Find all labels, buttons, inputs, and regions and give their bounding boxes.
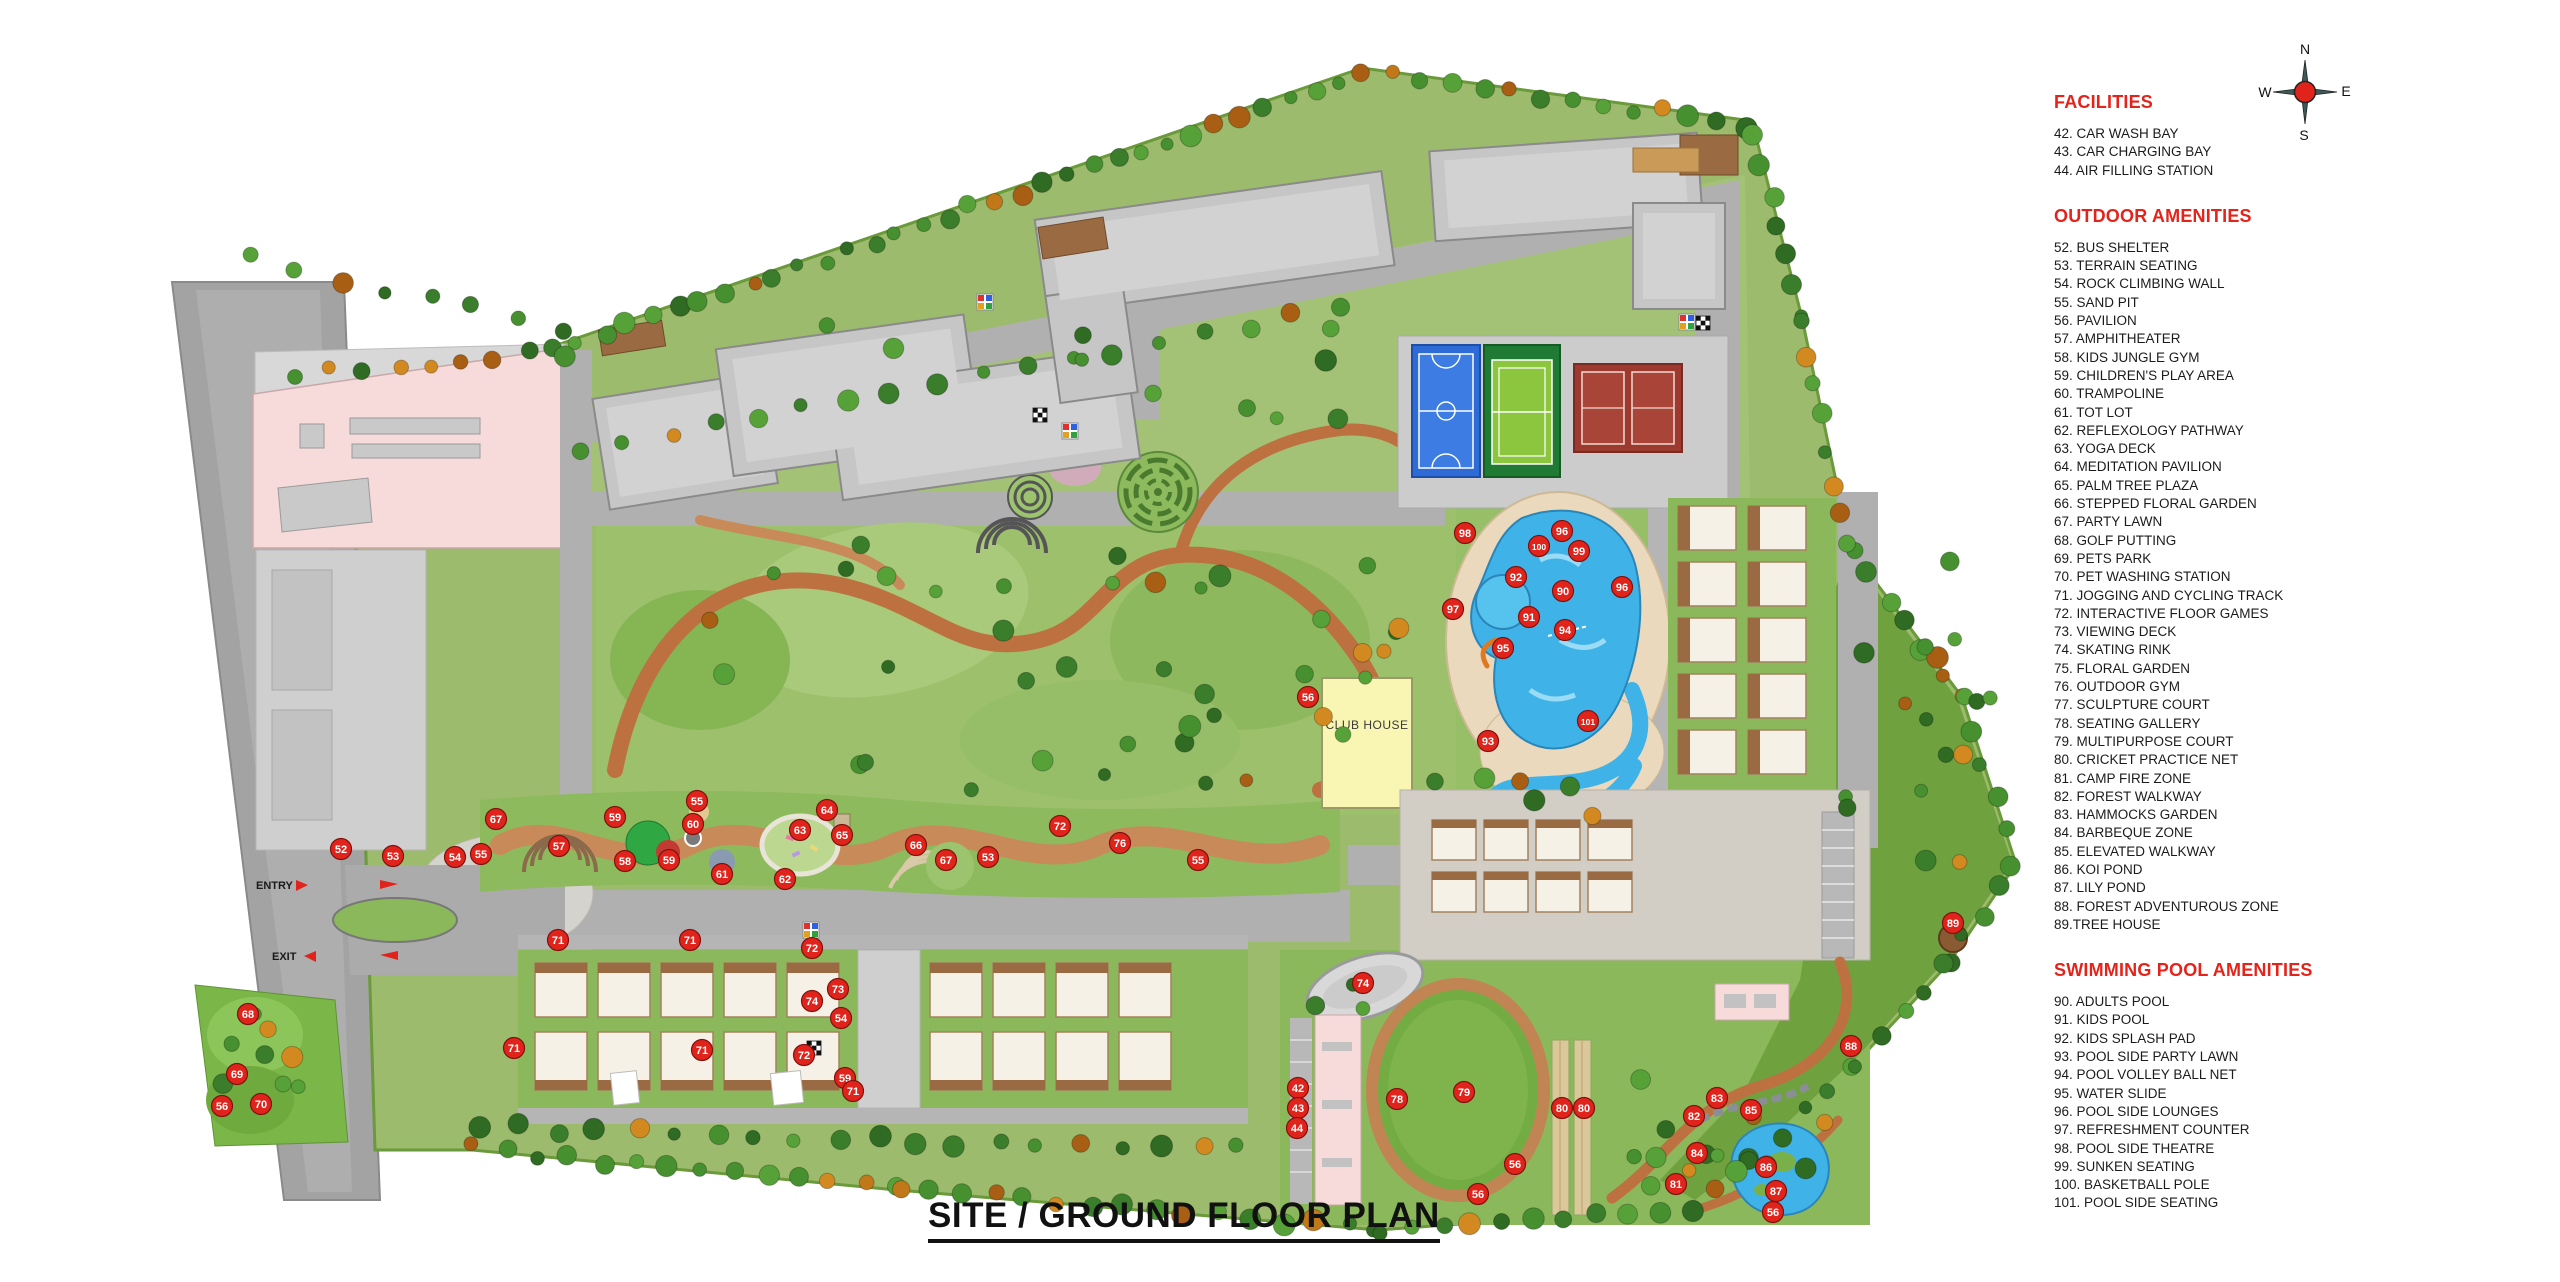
legend-item: 76. OUTDOOR GYM bbox=[2054, 678, 2524, 696]
legend-item: 59. CHILDREN'S PLAY AREA bbox=[2054, 367, 2524, 385]
tree bbox=[333, 273, 354, 294]
tree bbox=[1915, 850, 1936, 871]
svg-text:79: 79 bbox=[1458, 1087, 1470, 1099]
tree bbox=[1195, 582, 1207, 594]
tree bbox=[1306, 996, 1324, 1014]
tree bbox=[1322, 320, 1339, 337]
legend-item: 82. FOREST WALKWAY bbox=[2054, 788, 2524, 806]
tree bbox=[1631, 1070, 1651, 1090]
svg-text:55: 55 bbox=[475, 849, 487, 861]
tree bbox=[224, 1036, 239, 1051]
svg-text:67: 67 bbox=[490, 814, 502, 826]
volleyball-courts bbox=[1574, 364, 1682, 452]
tree bbox=[1285, 91, 1297, 103]
legend-item: 60. TRAMPOLINE bbox=[2054, 385, 2524, 403]
quad-color-marker-icon bbox=[977, 294, 993, 310]
plan-marker: 60 bbox=[683, 814, 704, 835]
svg-text:87: 87 bbox=[1770, 1186, 1782, 1198]
legend-item: 91. KIDS POOL bbox=[2054, 1011, 2524, 1029]
basement-ramp-sign bbox=[610, 1071, 639, 1106]
legend-item: 58. KIDS JUNGLE GYM bbox=[2054, 349, 2524, 367]
tree bbox=[583, 1118, 605, 1140]
legend-item: 74. SKATING RINK bbox=[2054, 641, 2524, 659]
tree bbox=[1427, 773, 1444, 790]
tree bbox=[1940, 552, 1959, 571]
svg-text:98: 98 bbox=[1459, 528, 1471, 540]
tree bbox=[1179, 715, 1201, 737]
tree bbox=[1270, 412, 1283, 425]
quad-color-marker-icon bbox=[1062, 423, 1078, 439]
tennis-court bbox=[1484, 345, 1560, 477]
tree bbox=[1817, 1114, 1833, 1130]
tree bbox=[917, 218, 931, 232]
tree bbox=[1838, 799, 1856, 817]
svg-text:95: 95 bbox=[1497, 643, 1509, 655]
tree bbox=[1075, 327, 1092, 344]
tree bbox=[1386, 65, 1399, 78]
svg-text:55: 55 bbox=[691, 796, 703, 808]
tree bbox=[1059, 167, 1074, 182]
legend-item: 73. VIEWING DECK bbox=[2054, 623, 2524, 641]
tree bbox=[1314, 708, 1332, 726]
shed-window bbox=[1754, 994, 1776, 1008]
svg-text:76: 76 bbox=[1114, 838, 1126, 850]
tree bbox=[1707, 112, 1725, 130]
tree bbox=[550, 1125, 568, 1143]
tree bbox=[1873, 1027, 1892, 1046]
tree bbox=[1352, 64, 1370, 82]
tree bbox=[1377, 644, 1391, 658]
tree bbox=[726, 1162, 743, 1179]
tree bbox=[656, 1155, 677, 1176]
svg-text:71: 71 bbox=[696, 1045, 708, 1057]
tree bbox=[1820, 1084, 1835, 1099]
tree bbox=[883, 338, 904, 359]
svg-text:96: 96 bbox=[1556, 526, 1568, 538]
tree bbox=[1120, 736, 1136, 752]
tree bbox=[714, 664, 735, 685]
plan-marker: 55 bbox=[471, 844, 492, 865]
tree bbox=[1151, 1135, 1173, 1157]
tree bbox=[1238, 400, 1255, 417]
tree bbox=[1356, 1002, 1370, 1016]
tree bbox=[1560, 777, 1579, 796]
svg-text:57: 57 bbox=[553, 841, 565, 853]
tree bbox=[288, 369, 303, 384]
plan-marker: 55 bbox=[687, 791, 708, 812]
legend-section-title: SWIMMING POOL AMENITIES bbox=[2054, 960, 2524, 981]
legend-item: 93. POOL SIDE PARTY LAWN bbox=[2054, 1048, 2524, 1066]
tree bbox=[762, 269, 780, 287]
tree bbox=[1476, 80, 1495, 99]
exit-label: EXIT bbox=[272, 951, 297, 963]
tree bbox=[499, 1140, 517, 1158]
site-plan-page: CLUB HOUSE SPORTS CLUB bbox=[0, 0, 2560, 1282]
svg-text:80: 80 bbox=[1578, 1103, 1590, 1115]
tree bbox=[2000, 856, 2020, 876]
tree bbox=[1359, 671, 1372, 684]
entry-label: ENTRY bbox=[256, 880, 294, 892]
tree bbox=[1618, 1204, 1638, 1224]
tree bbox=[1748, 154, 1769, 175]
svg-text:43: 43 bbox=[1292, 1103, 1304, 1115]
tree bbox=[1086, 156, 1103, 173]
legend-item: 98. POOL SIDE THEATRE bbox=[2054, 1140, 2524, 1158]
tree bbox=[1915, 784, 1928, 797]
svg-text:71: 71 bbox=[684, 935, 696, 947]
tree bbox=[1512, 773, 1529, 790]
tree bbox=[1934, 954, 1953, 973]
tree bbox=[1242, 320, 1260, 338]
tree bbox=[977, 366, 989, 378]
tree bbox=[1180, 125, 1202, 147]
plan-marker: 68 bbox=[238, 1004, 259, 1025]
legend-item: 65. PALM TREE PLAZA bbox=[2054, 477, 2524, 495]
svg-text:60: 60 bbox=[687, 819, 699, 831]
tree bbox=[667, 429, 681, 443]
tree bbox=[322, 361, 335, 374]
parking-row bbox=[272, 570, 332, 690]
tree bbox=[508, 1113, 528, 1133]
tree bbox=[1109, 547, 1126, 564]
legend: FACILITIES42. CAR WASH BAY43. CAR CHARGI… bbox=[2054, 92, 2524, 1213]
plan-marker: 91 bbox=[1519, 607, 1540, 628]
svg-text:72: 72 bbox=[798, 1050, 810, 1062]
legend-item: 100. BASKETBALL POLE bbox=[2054, 1176, 2524, 1194]
plan-marker: 58 bbox=[615, 851, 636, 872]
legend-item: 78. SEATING GALLERY bbox=[2054, 715, 2524, 733]
tree bbox=[1106, 576, 1120, 590]
svg-text:85: 85 bbox=[1745, 1105, 1757, 1117]
quad-color-marker-icon bbox=[1679, 314, 1695, 330]
plan-marker: 71 bbox=[548, 930, 569, 951]
tree bbox=[1895, 610, 1915, 630]
plan-marker: 93 bbox=[1478, 731, 1499, 752]
tree bbox=[1983, 691, 1997, 705]
tree bbox=[1207, 708, 1222, 723]
plan-marker: 67 bbox=[486, 809, 507, 830]
tree bbox=[709, 1125, 729, 1145]
tree bbox=[1682, 1200, 1703, 1221]
tree bbox=[668, 1128, 680, 1140]
legend-item: 90. ADULTS POOL bbox=[2054, 993, 2524, 1011]
tree bbox=[1056, 657, 1077, 678]
villas-bottom-left bbox=[518, 935, 1248, 1124]
plan-marker: 74 bbox=[1353, 973, 1374, 994]
svg-text:71: 71 bbox=[552, 935, 564, 947]
plan-marker: 95 bbox=[1493, 638, 1514, 659]
tree bbox=[1281, 303, 1300, 322]
tree bbox=[708, 414, 724, 430]
legend-item: 75. FLORAL GARDEN bbox=[2054, 660, 2524, 678]
tree bbox=[986, 194, 1002, 210]
plan-marker: 55 bbox=[1188, 850, 1209, 871]
tree bbox=[870, 1125, 892, 1147]
legend-item: 61. TOT LOT bbox=[2054, 404, 2524, 422]
compass-n: N bbox=[2300, 41, 2310, 57]
plan-marker: 81 bbox=[1666, 1174, 1687, 1195]
tree bbox=[1641, 1176, 1660, 1195]
tree bbox=[749, 277, 762, 290]
plan-marker: 85 bbox=[1741, 1100, 1762, 1121]
plan-marker: 56 bbox=[1763, 1202, 1784, 1223]
svg-text:56: 56 bbox=[1767, 1207, 1779, 1219]
tree bbox=[1812, 403, 1832, 423]
legend-item: 52. BUS SHELTER bbox=[2054, 239, 2524, 257]
svg-text:69: 69 bbox=[231, 1069, 243, 1081]
plan-marker: 71 bbox=[692, 1040, 713, 1061]
plan-marker: 56 bbox=[1505, 1154, 1526, 1175]
svg-text:74: 74 bbox=[806, 996, 819, 1008]
tree bbox=[993, 620, 1014, 641]
plan-marker: 76 bbox=[1110, 833, 1131, 854]
tree bbox=[595, 1155, 614, 1174]
tree bbox=[394, 360, 409, 375]
plan-marker: 96 bbox=[1552, 521, 1573, 542]
tree bbox=[1494, 1213, 1510, 1229]
plan-marker: 53 bbox=[978, 847, 999, 868]
tree bbox=[1019, 357, 1037, 375]
club-house bbox=[1322, 678, 1412, 808]
tree bbox=[1018, 672, 1035, 689]
tree bbox=[1443, 73, 1462, 92]
tree bbox=[882, 660, 895, 673]
tree bbox=[531, 1151, 545, 1165]
tree bbox=[1204, 114, 1223, 133]
svg-text:78: 78 bbox=[1391, 1094, 1403, 1106]
plan-marker: 84 bbox=[1687, 1143, 1708, 1164]
tree bbox=[1253, 98, 1272, 117]
tree bbox=[878, 383, 899, 404]
tree bbox=[1657, 1120, 1675, 1138]
svg-text:63: 63 bbox=[794, 825, 806, 837]
sand-pit bbox=[1633, 148, 1699, 172]
svg-text:53: 53 bbox=[982, 852, 994, 864]
tree bbox=[256, 1046, 274, 1064]
tree bbox=[1411, 73, 1427, 89]
svg-text:67: 67 bbox=[940, 855, 952, 867]
tree bbox=[821, 256, 835, 270]
tree bbox=[767, 567, 780, 580]
svg-text:81: 81 bbox=[1670, 1179, 1682, 1191]
legend-section-title: OUTDOOR AMENITIES bbox=[2054, 206, 2524, 227]
svg-text:94: 94 bbox=[1559, 625, 1572, 637]
tree bbox=[1523, 1208, 1545, 1230]
legend-item: 96. POOL SIDE LOUNGES bbox=[2054, 1103, 2524, 1121]
tree bbox=[1856, 561, 1877, 582]
svg-text:91: 91 bbox=[1523, 612, 1535, 624]
plan-marker: 92 bbox=[1506, 567, 1527, 588]
plan-marker: 59 bbox=[605, 807, 626, 828]
tree bbox=[1677, 105, 1699, 127]
tree bbox=[483, 351, 501, 369]
svg-text:90: 90 bbox=[1557, 586, 1569, 598]
tree bbox=[1795, 1158, 1816, 1179]
legend-item: 86. KOI POND bbox=[2054, 861, 2524, 879]
spiral-garden bbox=[1008, 475, 1052, 519]
tree bbox=[1328, 409, 1348, 429]
plan-marker: 72 bbox=[794, 1045, 815, 1066]
tree bbox=[1116, 1142, 1129, 1155]
legend-item: 66. STEPPED FLORAL GARDEN bbox=[2054, 495, 2524, 513]
tree bbox=[1152, 336, 1165, 349]
svg-text:68: 68 bbox=[242, 1009, 254, 1021]
tree bbox=[1587, 1204, 1606, 1223]
svg-text:59: 59 bbox=[663, 855, 675, 867]
tree bbox=[260, 1021, 277, 1038]
compass-s: S bbox=[2299, 127, 2308, 143]
svg-text:55: 55 bbox=[1192, 855, 1204, 867]
tree bbox=[1196, 1138, 1213, 1155]
legend-item: 44. AIR FILLING STATION bbox=[2054, 162, 2524, 180]
svg-text:82: 82 bbox=[1688, 1111, 1700, 1123]
legend-item: 57. AMPHITHEATER bbox=[2054, 330, 2524, 348]
plan-marker: 80 bbox=[1574, 1098, 1595, 1119]
tree bbox=[630, 1119, 649, 1138]
tree bbox=[1240, 774, 1253, 787]
tree bbox=[1989, 876, 2009, 896]
tree bbox=[282, 1046, 303, 1067]
svg-text:54: 54 bbox=[835, 1013, 848, 1025]
svg-text:74: 74 bbox=[1357, 978, 1370, 990]
plan-marker: 72 bbox=[802, 938, 823, 959]
legend-item: 88. FOREST ADVENTUROUS ZONE bbox=[2054, 898, 2524, 916]
plan-marker: 59 bbox=[659, 850, 680, 871]
tree bbox=[554, 346, 575, 367]
svg-text:66: 66 bbox=[910, 840, 922, 852]
tree bbox=[857, 754, 873, 770]
tree bbox=[1308, 83, 1325, 100]
tree bbox=[1458, 1213, 1480, 1235]
plan-marker: 62 bbox=[775, 869, 796, 890]
tree bbox=[1296, 665, 1314, 683]
legend-item: 81. CAMP FIRE ZONE bbox=[2054, 770, 2524, 788]
tree bbox=[630, 1155, 644, 1169]
tree bbox=[1936, 669, 1949, 682]
pink-zone-building bbox=[278, 478, 372, 532]
tree bbox=[1075, 353, 1088, 366]
tree bbox=[877, 567, 896, 586]
svg-text:72: 72 bbox=[1054, 821, 1066, 833]
tree bbox=[1776, 244, 1796, 264]
tree bbox=[715, 284, 734, 303]
tree bbox=[1502, 82, 1516, 96]
tree bbox=[1794, 313, 1810, 329]
svg-text:56: 56 bbox=[1472, 1189, 1484, 1201]
tree bbox=[869, 237, 885, 253]
tree bbox=[1032, 172, 1052, 192]
plan-marker: 100 bbox=[1529, 536, 1550, 557]
svg-text:83: 83 bbox=[1711, 1093, 1723, 1105]
legend-item: 62. REFLEXOLOGY PATHWAY bbox=[2054, 422, 2524, 440]
legend-item: 63. YOGA DECK bbox=[2054, 440, 2524, 458]
tree bbox=[1228, 106, 1250, 128]
tree bbox=[838, 561, 854, 577]
tree bbox=[645, 306, 663, 324]
legend-item: 56. PAVILION bbox=[2054, 312, 2524, 330]
tree bbox=[1830, 503, 1849, 522]
tree bbox=[943, 1136, 965, 1158]
tree bbox=[1781, 274, 1801, 294]
tree bbox=[831, 1130, 851, 1150]
plan-marker: 44 bbox=[1287, 1118, 1308, 1139]
quad-color-marker-icon bbox=[803, 922, 819, 938]
tree bbox=[1531, 90, 1549, 108]
plan-marker: 71 bbox=[680, 930, 701, 951]
svg-text:56: 56 bbox=[1302, 692, 1314, 704]
tree bbox=[615, 436, 629, 450]
maze-garden bbox=[1118, 452, 1198, 532]
compass-e: E bbox=[2341, 83, 2350, 99]
plan-marker: 52 bbox=[331, 839, 352, 860]
tree bbox=[1706, 1180, 1724, 1198]
svg-text:97: 97 bbox=[1447, 604, 1459, 616]
tree bbox=[859, 1175, 874, 1190]
plan-marker: 57 bbox=[549, 836, 570, 857]
facility-window bbox=[1322, 1100, 1352, 1109]
tree bbox=[1948, 632, 1962, 646]
svg-text:73: 73 bbox=[832, 984, 844, 996]
legend-item: 54. ROCK CLIMBING WALL bbox=[2054, 275, 2524, 293]
svg-text:58: 58 bbox=[619, 856, 631, 868]
tree bbox=[787, 1134, 800, 1147]
svg-text:54: 54 bbox=[449, 852, 462, 864]
tree bbox=[1110, 148, 1128, 166]
tree bbox=[1848, 1060, 1861, 1073]
svg-text:53: 53 bbox=[387, 851, 399, 863]
tree bbox=[464, 1137, 478, 1151]
tree bbox=[379, 287, 391, 299]
plan-marker: 80 bbox=[1552, 1098, 1573, 1119]
plan-marker: 90 bbox=[1553, 581, 1574, 602]
tree bbox=[1961, 721, 1982, 742]
plan-marker: 54 bbox=[445, 847, 466, 868]
legend-item: 84. BARBEQUE ZONE bbox=[2054, 824, 2524, 842]
legend-item: 101. POOL SIDE SEATING bbox=[2054, 1194, 2524, 1212]
tree bbox=[1389, 618, 1409, 638]
svg-text:99: 99 bbox=[1573, 546, 1585, 558]
tree bbox=[1353, 643, 1372, 662]
legend-item: 67. PARTY LAWN bbox=[2054, 513, 2524, 531]
tree bbox=[1882, 593, 1901, 612]
sports-courts bbox=[1398, 336, 1728, 508]
plan-marker: 66 bbox=[906, 835, 927, 856]
tree bbox=[1335, 727, 1351, 743]
plan-marker: 99 bbox=[1569, 541, 1590, 562]
svg-text:80: 80 bbox=[1556, 1103, 1568, 1115]
tree bbox=[1013, 186, 1033, 206]
svg-text:56: 56 bbox=[216, 1101, 228, 1113]
legend-item: 95. WATER SLIDE bbox=[2054, 1085, 2524, 1103]
tree bbox=[687, 291, 707, 311]
tree bbox=[1799, 1101, 1812, 1114]
legend-item: 83. HAMMOCKS GARDEN bbox=[2054, 806, 2524, 824]
svg-text:61: 61 bbox=[716, 869, 728, 881]
pink-zone-building bbox=[300, 424, 324, 448]
svg-text:92: 92 bbox=[1510, 572, 1522, 584]
facility-window bbox=[1322, 1158, 1352, 1167]
legend-item: 79. MULTIPURPOSE COURT bbox=[2054, 733, 2524, 751]
tree bbox=[1028, 1139, 1041, 1152]
tree bbox=[1197, 324, 1213, 340]
tree bbox=[243, 247, 258, 262]
tree bbox=[789, 1167, 808, 1186]
tree bbox=[1650, 1202, 1671, 1223]
tree bbox=[1161, 138, 1173, 150]
legend-item: 85. ELEVATED WALKWAY bbox=[2054, 843, 2524, 861]
tree bbox=[1565, 92, 1581, 108]
plan-marker: 94 bbox=[1555, 620, 1576, 641]
